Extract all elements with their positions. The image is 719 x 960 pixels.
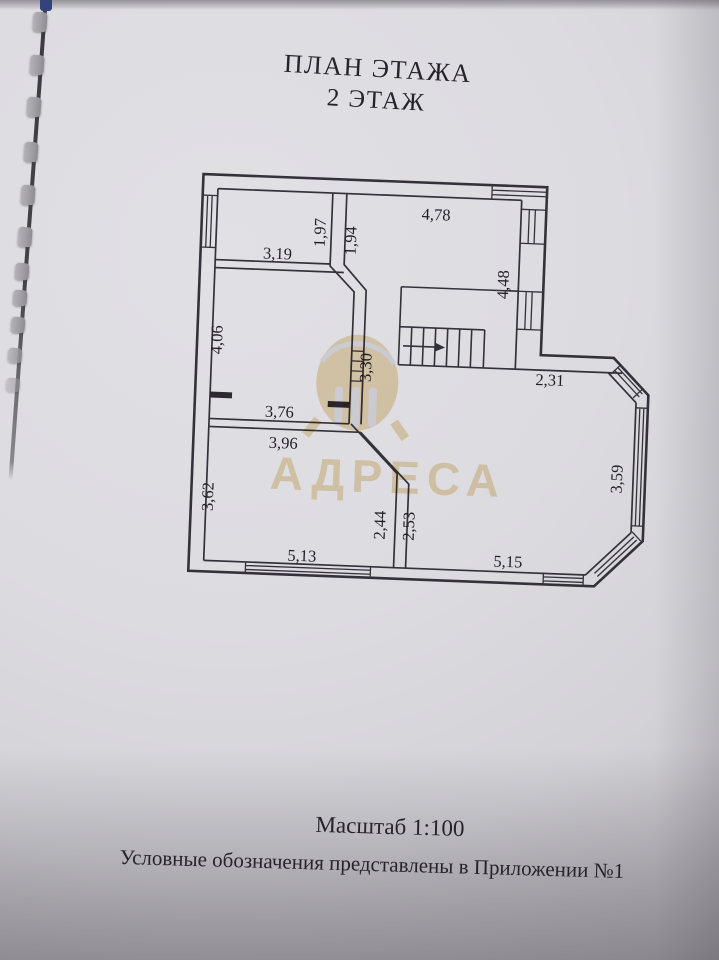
binding-ring	[10, 317, 25, 334]
page-title: ПЛАН ЭТАЖА 2 ЭТАЖ	[231, 46, 524, 123]
binding-ring	[7, 348, 22, 364]
binding-ring	[12, 290, 27, 307]
watermark-emblem	[305, 333, 408, 438]
dimension-label: 3,62	[198, 482, 218, 512]
binding-ring	[6, 378, 21, 393]
dimension-label: 4,48	[493, 270, 513, 300]
binding-ring	[14, 263, 29, 281]
dimension-label: 1,97	[310, 218, 330, 248]
scanned-floor-plan-page: { "document": { "title": { "line1": "ПЛА…	[0, 0, 719, 960]
dimension-label: 4,78	[421, 204, 451, 224]
legend-note: Условные обозначения представлены в Прил…	[112, 845, 632, 885]
watermark-text: АДРЕСА	[269, 447, 507, 507]
watermark: АДРЕСА	[225, 320, 561, 521]
scale-note: Масштаб 1:100	[245, 810, 536, 844]
binding-ring	[26, 97, 41, 118]
dimension-label: 3,59	[607, 464, 627, 494]
dimension-label: 4,06	[207, 325, 227, 355]
binding-ring	[29, 55, 44, 76]
dimension-label: 5,13	[287, 546, 317, 566]
binding-ring	[20, 185, 35, 206]
dimension-label: 1,94	[341, 226, 361, 256]
binding-top-mark	[40, 0, 52, 11]
dimension-label: 3,19	[263, 243, 293, 263]
binding-ring	[17, 227, 32, 248]
dimension-label: 5,15	[493, 551, 523, 571]
binding-ring	[23, 142, 38, 163]
binding-ring	[32, 12, 47, 33]
